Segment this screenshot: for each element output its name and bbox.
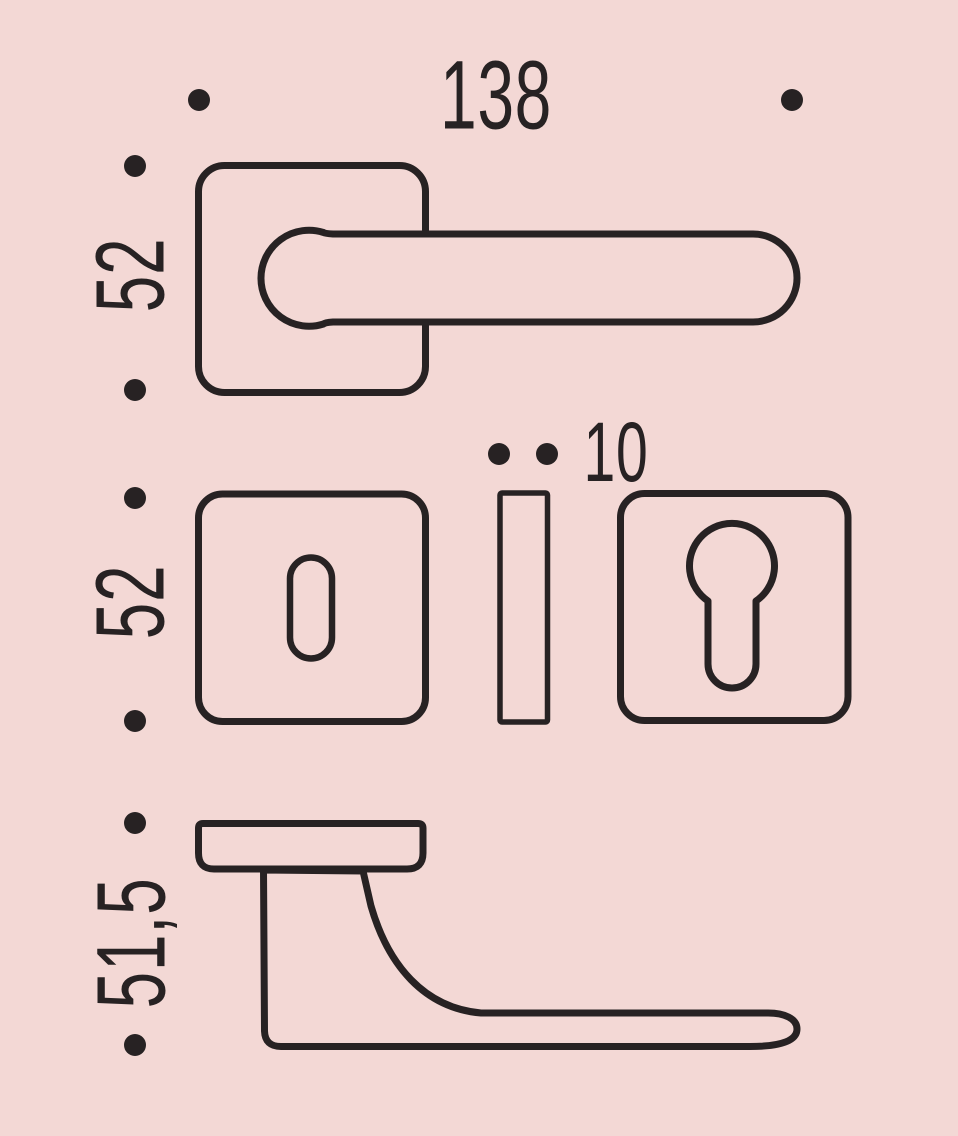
dim-dot-length-left [188,89,210,111]
dim-dot-length-right [781,89,803,111]
side-view-lever [264,870,798,1047]
side-view-rosette [199,824,424,870]
dim-dot-thickness-right [536,443,558,465]
dim-dot-rosette-bottom [124,379,146,401]
dim-dot-rosette-top [124,155,146,177]
dimension-label-thickness: 10 [584,410,649,494]
dim-dot-projection-top [124,812,146,834]
dimension-label-escutcheon-height: 52 [82,565,179,640]
dimension-label-overall-length: 138 [440,47,552,144]
dimension-label-projection: 51,5 [83,877,180,1008]
dim-dot-projection-bottom [124,1034,146,1056]
top-view-lever [261,230,797,326]
key-escutcheon-plate [199,494,426,722]
key-slot [290,558,332,659]
dim-dot-thickness-left [488,443,510,465]
dimension-label-rosette-height: 52 [82,238,179,313]
dim-dot-escutcheon-bottom [124,710,146,732]
cylinder-keyhole [690,523,775,688]
dim-dot-escutcheon-top [124,487,146,509]
technical-drawing-canvas: 138 52 52 10 51,5 [0,0,958,1136]
escutcheon-side-profile [500,493,548,722]
